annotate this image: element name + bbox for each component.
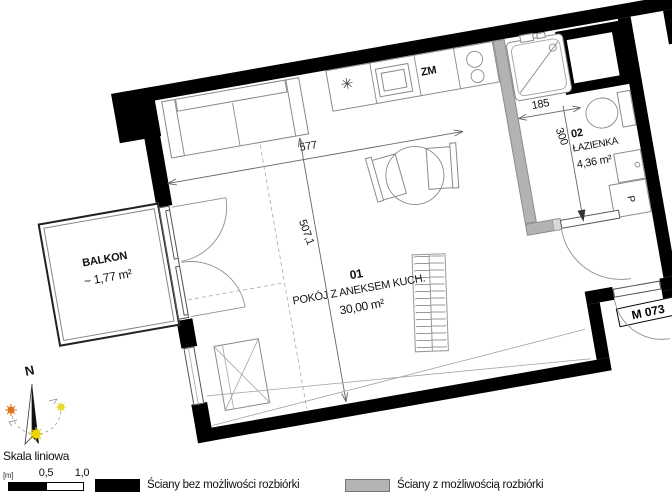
entrance-door-leaf (613, 281, 662, 298)
wall-segment (587, 302, 610, 359)
washing-machine-label: P (624, 194, 636, 202)
legend-label-nonremovable: Ściany bez możliwości rozbiórki (147, 479, 299, 492)
sun-direction-arrow (49, 399, 57, 404)
vent-shaft-interior (567, 32, 620, 83)
shower-inner (510, 37, 568, 97)
legend: Ściany bez możliwości rozbiórki Ściany z… (0, 475, 672, 500)
compass-needle-dark (32, 384, 39, 444)
sun-direction-arrow (9, 420, 17, 426)
apartment-id-badge: M 073 (616, 296, 672, 327)
floor-plan: BALKON ~ 1,77 m² ✳ ZM P 01 POKÓJ Z ANEKS… (13, 0, 672, 481)
compass-north-label: N (24, 363, 36, 379)
legend-swatch-removable (345, 479, 390, 492)
sun-icon (5, 404, 17, 416)
compass-graphic (5, 362, 105, 462)
sun-path-arc (11, 408, 61, 434)
bathroom-number: 02 (570, 127, 584, 141)
legend-swatch-nonremovable (95, 479, 140, 492)
wall-segment (585, 287, 615, 305)
wall-segment (663, 8, 672, 44)
sun-icon (29, 427, 43, 441)
sun-icon (56, 402, 66, 412)
dim-room-width: 577 (285, 137, 332, 157)
scale-title: Skala liniowa (3, 450, 69, 463)
bathroom-door-leaf (560, 210, 621, 229)
compass: N (5, 362, 105, 462)
window-frame (183, 346, 204, 405)
burner-icon: ✳ (340, 76, 355, 94)
dim-room-depth: 507,1 (294, 211, 319, 253)
dim-bathroom-depth: 300 (549, 116, 574, 158)
compass-needle-icon (25, 384, 32, 444)
legend-label-removable: Ściany z możliwością rozbiórki (397, 479, 543, 492)
wardrobe (213, 338, 270, 411)
